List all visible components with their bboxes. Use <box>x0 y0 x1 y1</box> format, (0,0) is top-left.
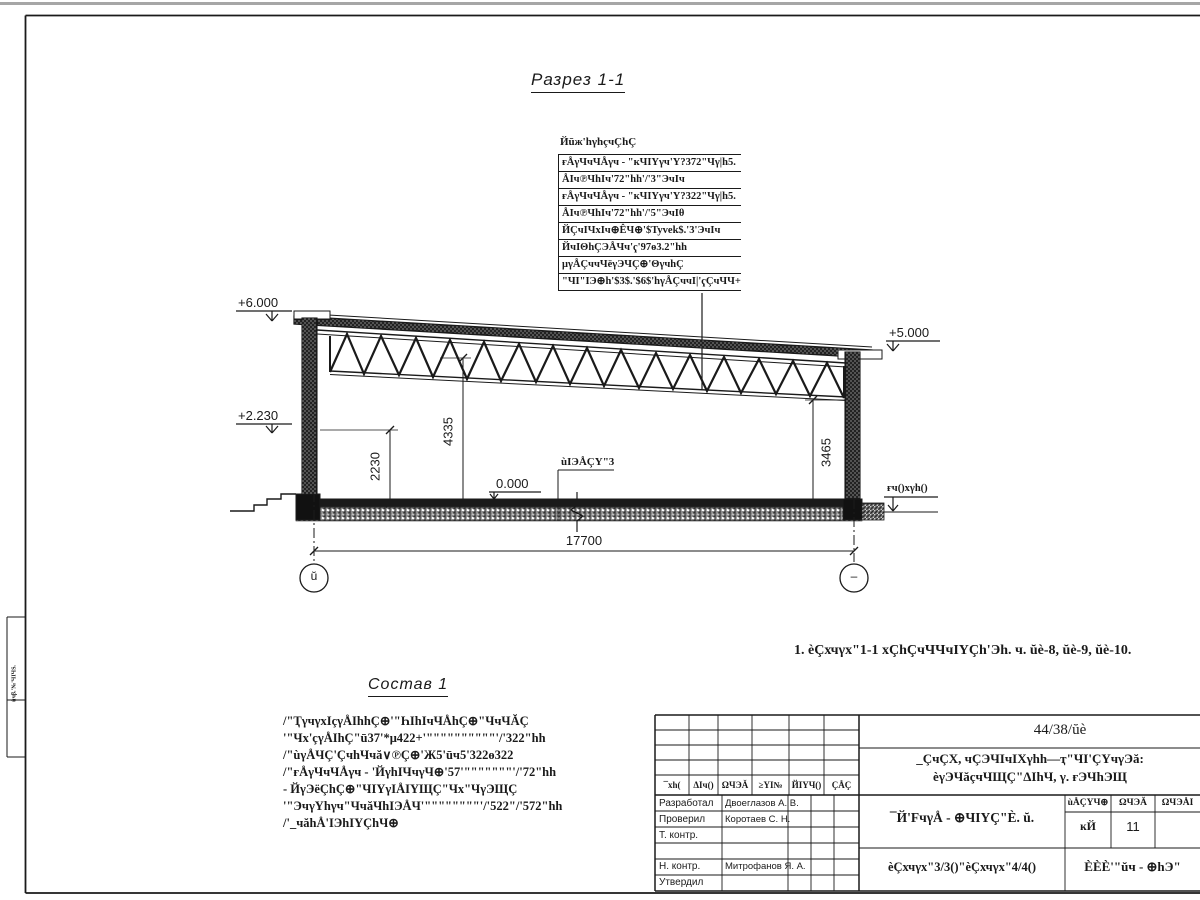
project-name-line1: _ÇчÇХ, чÇЭЧIчIХγhh—ҭ"ЧI'ÇҮчγЭă: <box>865 752 1195 767</box>
titleblock-header-col: ¯хh( <box>655 780 689 790</box>
composition-line: /"ҬγчγхIçγÅIhhÇ⊕'"ҺIhIчЧÅhÇ⊕"ЧчЧĂÇ <box>283 714 562 731</box>
project-name-line2: èγЭЧăçчЧЩÇ"ΔIhЧ, γ. ғЭЧhЭЩ <box>865 770 1195 785</box>
roof-spec-row: ЙÇчIЧхIч⊕ÊЧ⊕'$Tyvek$.'3'ЭчIч <box>559 223 741 240</box>
composition-line: - ЙγЭёÇhÇ⊕"ЧIҮγIÅIҮЩÇ"Чх"ЧγЭЩÇ <box>283 782 562 799</box>
mini-table-header: ΩЧЭĂ <box>1111 798 1155 809</box>
composition-list: /"ҬγчγхIçγÅIhhÇ⊕'"ҺIhIчЧÅhÇ⊕"ЧчЧĂÇ '"Чх'… <box>283 714 562 833</box>
role-label: Т. контр. <box>659 830 698 842</box>
role-label: Разработал <box>659 798 713 810</box>
composition-line: /"ғÅγЧчЧÅγч - 'ЙγhIЧчγЧ⊕'57'"""""""'/'72… <box>283 765 562 782</box>
floor-slab <box>230 492 938 532</box>
titleblock-header-col: ЙIҮЧ() <box>789 780 824 790</box>
roof-spec-row: ÅIч℗ЧhIч'72"hh'/'5"ЭчIθ <box>559 206 741 223</box>
titleblock-header-col: ΩЧЭĂ <box>718 780 752 790</box>
doc-number: 44/38/ŭè <box>940 722 1180 739</box>
drawing-sheet: { "drawing": { "section_title": "Разрез … <box>0 0 1200 900</box>
role-label: Н. контр. <box>659 861 700 873</box>
roof-spec-row: ғÅγЧчЧÅγч - "кЧIҮγч'Ү?322"Чγ|h5. <box>559 189 741 206</box>
mini-table-header: ΩЧЭÅI <box>1155 798 1200 809</box>
roof-spec-row: "ЧI"IЭ⊕h'$3$.'$6$'hγÅÇччI|'ҁÇчЧЧ+ <box>559 274 741 291</box>
role-name: Коротаев С. Н. <box>725 815 790 826</box>
elevation-top-right: +5.000 <box>889 326 929 341</box>
dim-2230: 2230 <box>369 436 384 496</box>
composition-line: '"Чх'çγÅIhÇ"ū37'*μ422+'""""""""""'/'322"… <box>283 731 562 748</box>
role-name: Двоеглазов А. В. <box>725 799 799 810</box>
composition-title: Состав 1 <box>368 676 448 697</box>
roof-spec-row: ÅIч℗ЧhIч'72"hh'/'3"ЭчIч <box>559 172 741 189</box>
mini-table-header: ùÅÇҮЧ⊕ <box>1065 798 1111 809</box>
roof-spec-row: ЙчIΘhÇЭÅЧч'ҁ'97ө3.2"hh <box>559 240 741 257</box>
dim-3465: 3465 <box>820 422 835 482</box>
dim-17700: 17700 <box>544 534 624 549</box>
roof-spec-row: ғÅγЧчЧÅγч - "кЧIҮγч'Ү?372"Чγ|h5. <box>559 155 741 172</box>
roof-spec-rows: ғÅγЧчЧÅγч - "кЧIҮγч'Ү?372"Чγ|h5. ÅIч℗ЧhI… <box>558 154 741 291</box>
section-title: Разрез 1-1 <box>531 70 625 93</box>
leader-lines <box>558 293 702 521</box>
grid-bubble-right-label: – <box>840 570 868 584</box>
company-name: ÈÈÈ'"ŭч - ⊕hЭ" <box>1067 860 1198 875</box>
elevation-top-left: +6.000 <box>238 296 278 311</box>
mini-table-value-stage: ĸЙ <box>1065 820 1111 834</box>
drawing-note: 1. èÇхчγх"1-1 хÇhÇчЧЧчIҮÇh'Эh. ч. ŭè-8, … <box>794 643 1131 659</box>
grid-bubble-left-label: ŭ <box>300 570 328 584</box>
role-name: Митрофанов Я. А. <box>725 862 806 873</box>
sheet-name: ¯Й'FчγÅ - ⊕ЧIҮÇ"È. ŭ. <box>861 810 1063 826</box>
roof-spec-table: Йūж'hγhçчÇhÇ ғÅγЧчЧÅγч - "кЧIҮγч'Ү?372"Ч… <box>558 136 741 291</box>
elevation-zero: 0.000 <box>496 477 529 492</box>
composition-line: /"ùγÅЧÇ'ÇчhЧчă∨℗Ç⊕'Ж5'ūч5'322ө322 <box>283 748 562 765</box>
mini-table-value-sheet: 11 <box>1111 820 1155 835</box>
titleblock-header-col: ÇÅÇ <box>824 780 859 790</box>
sheets-label: èÇхчγх"3/3()"èÇхчγх"4/4() <box>861 860 1063 874</box>
role-label: Проверил <box>659 814 705 826</box>
titleblock-header-col: ΔIч() <box>689 780 718 790</box>
edge-stamp-text: ùчβ.'№'ЧIЧЅ. <box>12 643 19 723</box>
composition-line: '"ЭчγҮhγч"ЧчăЧhIЭÅЧ'""""""""'/'522"/'572… <box>283 799 562 816</box>
roof-spec-title: Йūж'hγhçчÇhÇ <box>558 136 741 154</box>
floor-leader-label: ùIЭÅÇҮ"3 <box>561 456 614 469</box>
dim-4335: 4335 <box>442 401 457 461</box>
role-label: Утвердил <box>659 877 703 889</box>
titleblock-header-col: ≥ҮI№ <box>752 780 789 790</box>
ground-level-label: ғч()хγh() <box>887 483 928 495</box>
composition-line: /'_чăhÅ'IЭhIҮÇhЧ⊕ <box>283 816 562 833</box>
roof-spec-row: μγÅÇччЧёγЭЧÇ⊕'ΘγчhÇ <box>559 257 741 274</box>
elevation-mid-left: +2.230 <box>238 409 278 424</box>
